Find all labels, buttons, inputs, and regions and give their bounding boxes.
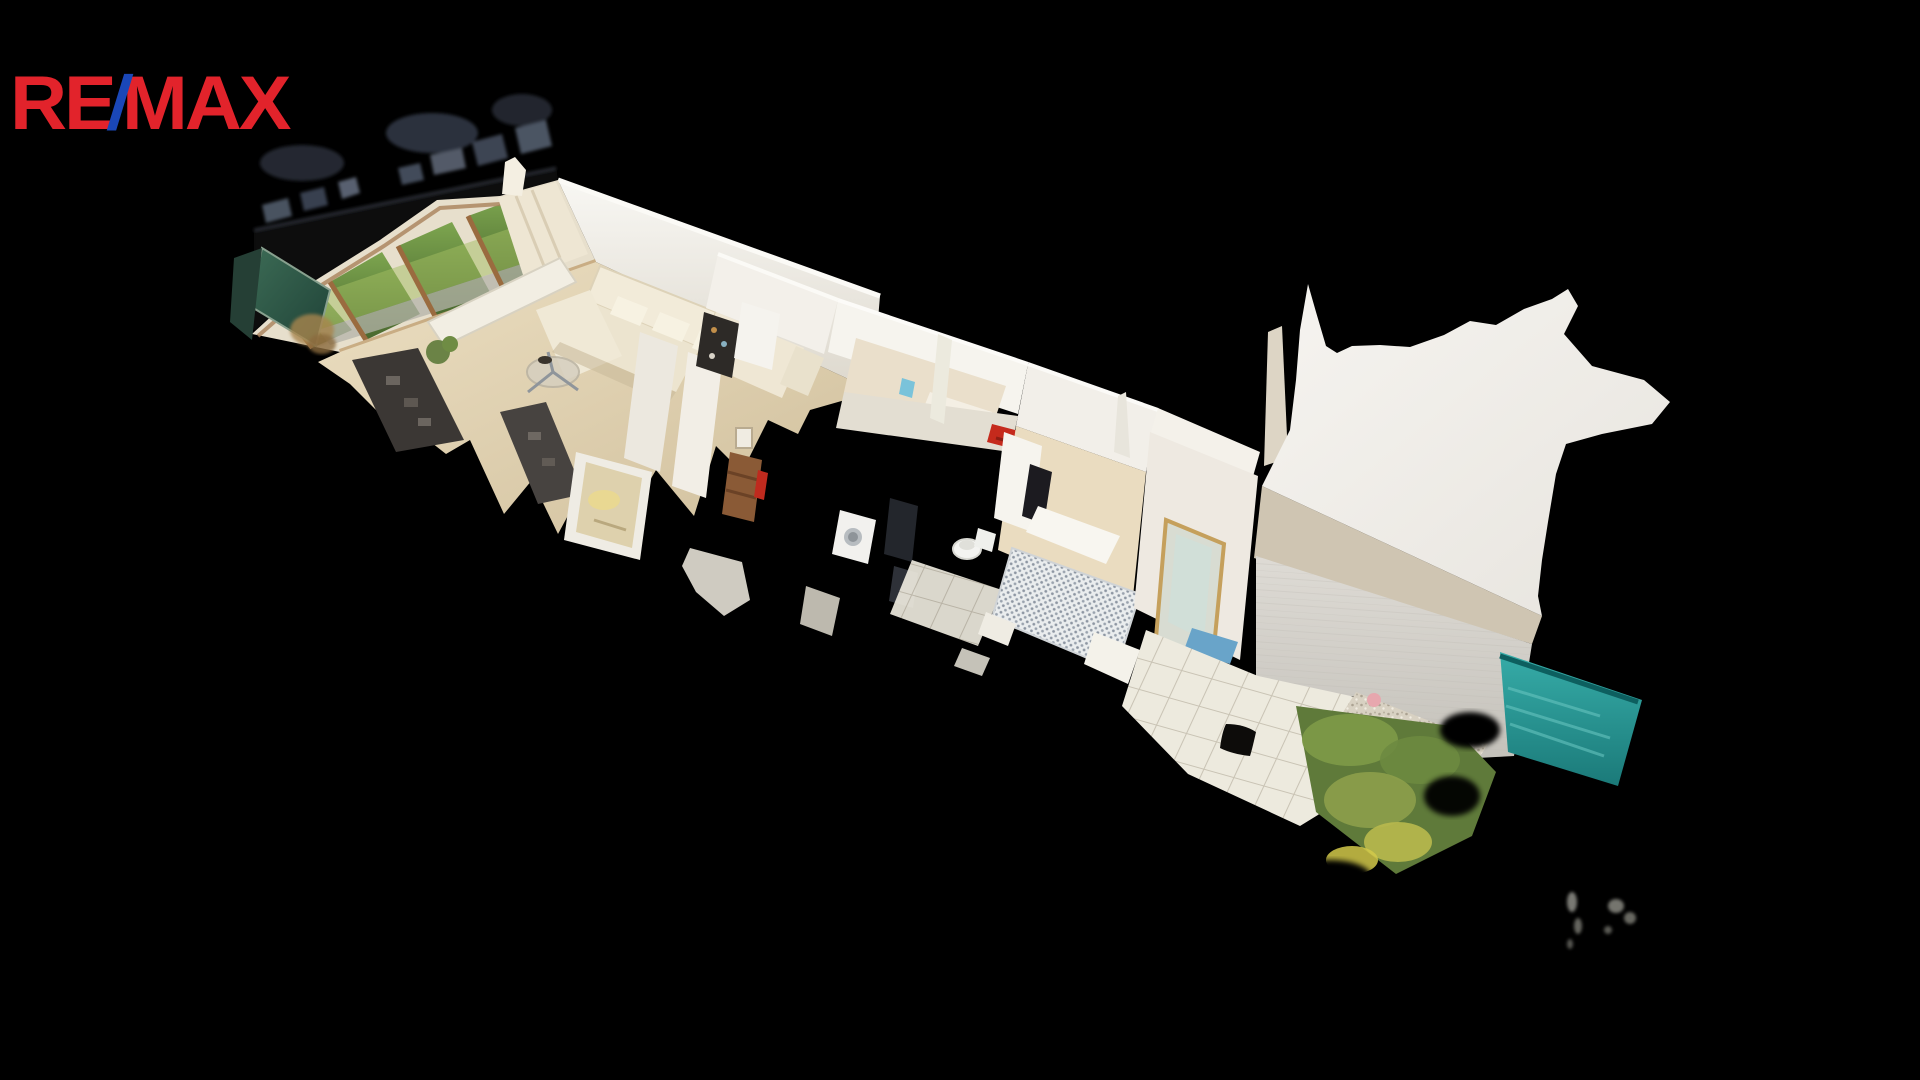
remax-logo: RE/MAX xyxy=(10,66,288,142)
virtual-tour-viewport: RE/MAX xyxy=(0,0,1920,1080)
logo-max: MAX xyxy=(122,61,288,146)
pink-stone xyxy=(1367,693,1381,707)
white-cabinet xyxy=(734,302,780,370)
hall-dark-shelf xyxy=(696,312,740,378)
logo-re: RE xyxy=(10,61,114,146)
heater-panel xyxy=(884,498,918,562)
dollhouse-3d-model[interactable] xyxy=(0,0,1920,1080)
